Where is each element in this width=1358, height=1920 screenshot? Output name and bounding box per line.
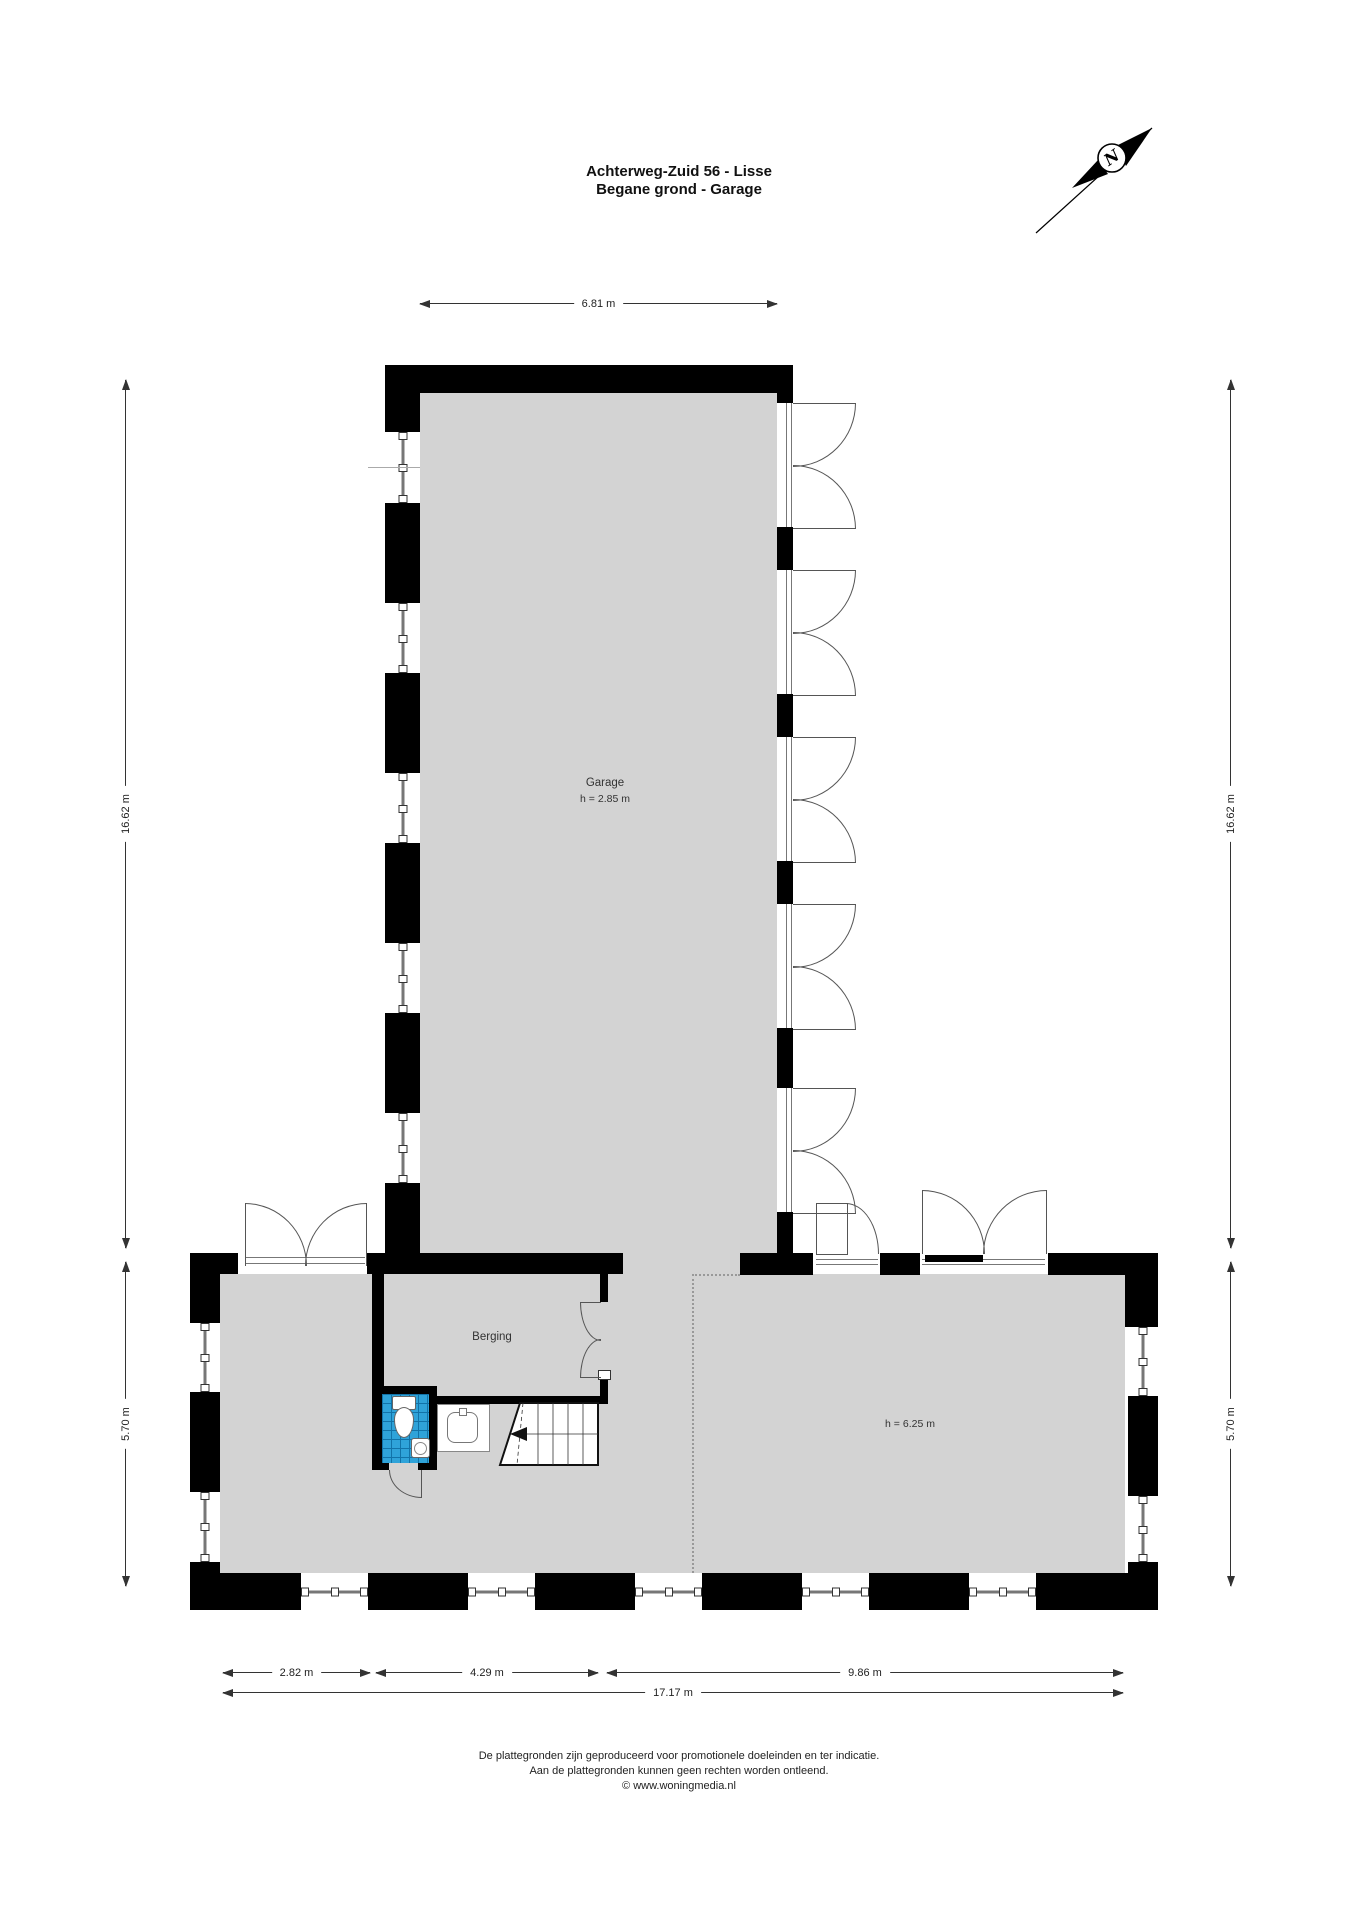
wall-segment <box>385 673 420 773</box>
wall-segment <box>777 861 793 904</box>
window <box>635 1573 702 1610</box>
door-swing <box>793 465 856 529</box>
door-swing <box>245 1203 307 1266</box>
window <box>468 1573 535 1610</box>
wall-segment <box>385 503 420 603</box>
wall-segment <box>385 1183 420 1253</box>
wall-segment <box>777 527 793 570</box>
wall-segment <box>1128 1396 1158 1496</box>
door-jamb <box>786 737 787 861</box>
door-jamb <box>791 403 792 527</box>
dimension-right-lower: 5.70 m <box>1230 1262 1231 1586</box>
door-threshold <box>816 1264 878 1265</box>
wall-segment <box>418 1463 437 1470</box>
door-leaf <box>816 1203 848 1255</box>
wall-segment <box>777 365 793 403</box>
door-swing <box>793 904 856 968</box>
lower-floor <box>220 1274 1125 1573</box>
wall-segment <box>429 1394 437 1463</box>
window <box>385 773 420 843</box>
wall-segment <box>777 1215 793 1253</box>
door-step <box>925 1255 983 1262</box>
door-threshold <box>816 1259 878 1260</box>
window <box>802 1573 869 1610</box>
window <box>190 1492 220 1562</box>
junction-floor <box>623 1253 740 1274</box>
room-label-berging: Berging <box>472 1331 512 1343</box>
door-swing <box>793 737 856 801</box>
room-label-garage: Garage <box>586 777 624 789</box>
disclaimer-line-1: De plattegronden zijn geproduceerd voor … <box>0 1750 1358 1762</box>
door-jamb <box>791 1088 792 1212</box>
wall-segment <box>535 1573 635 1610</box>
wall-segment <box>1048 1253 1158 1275</box>
dimension-bottom-2: 4.29 m <box>376 1672 598 1673</box>
window <box>385 1113 420 1183</box>
dimension-bottom-total: 17.17 m <box>223 1692 1123 1693</box>
wall-segment <box>777 1028 793 1088</box>
wall-segment <box>385 843 420 943</box>
window <box>385 603 420 673</box>
garage-floor <box>420 393 777 1253</box>
wall-segment <box>190 1274 220 1323</box>
north-arrow-icon: N <box>1020 100 1170 250</box>
wall-segment <box>385 1013 420 1113</box>
window <box>301 1573 368 1610</box>
room-height-hall: h = 6.25 m <box>885 1418 935 1430</box>
open-boundary <box>692 1274 694 1573</box>
door-swing <box>922 1190 985 1254</box>
wall-segment <box>372 1463 389 1470</box>
wall-segment <box>1036 1573 1158 1610</box>
wall-segment <box>869 1573 969 1610</box>
wall-segment <box>702 1573 802 1610</box>
door-jamb <box>786 570 787 694</box>
wall-segment <box>367 1253 623 1274</box>
wall-segment <box>777 694 793 737</box>
door-threshold <box>922 1264 1045 1265</box>
window <box>969 1573 1036 1610</box>
door-jamb <box>786 403 787 527</box>
sink-icon <box>447 1412 478 1443</box>
wall-segment <box>740 1253 813 1275</box>
door-swing <box>846 1203 879 1254</box>
window <box>385 943 420 1013</box>
door-swing <box>793 966 856 1030</box>
wall-segment <box>368 1573 468 1610</box>
wall-segment <box>190 1392 220 1492</box>
floorplan-page: Achterweg-Zuid 56 - Lisse Begane grond -… <box>0 0 1358 1920</box>
door-jamb <box>786 904 787 1028</box>
door-swing <box>793 403 856 467</box>
room-height-garage: h = 2.85 m <box>580 793 630 805</box>
wall-segment <box>190 1573 301 1610</box>
door-jamb <box>791 737 792 861</box>
door-swing <box>793 570 856 634</box>
dimension-left-lower: 5.70 m <box>125 1262 126 1586</box>
door-swing <box>793 1088 856 1152</box>
wall-segment <box>385 365 793 393</box>
wall-segment <box>190 1253 238 1274</box>
dimension-right-upper: 16.62 m <box>1230 380 1231 1248</box>
door-swing <box>983 1190 1047 1254</box>
disclaimer-line-2: Aan de plattegronden kunnen geen rechten… <box>0 1765 1358 1777</box>
dimension-left-upper: 16.62 m <box>125 380 126 1248</box>
dimension-bottom-3: 9.86 m <box>607 1672 1123 1673</box>
washbasin-icon <box>411 1438 430 1458</box>
door-swing <box>793 799 856 863</box>
door-jamb <box>786 1088 787 1212</box>
door-swing <box>305 1203 367 1266</box>
door-swing <box>793 632 856 696</box>
open-boundary <box>692 1274 740 1276</box>
window <box>1128 1496 1158 1562</box>
window <box>1128 1327 1158 1396</box>
window-sill-line <box>368 467 420 468</box>
staircase <box>496 1400 602 1470</box>
dimension-top: 6.81 m <box>420 303 777 304</box>
window <box>190 1323 220 1392</box>
wall-segment <box>1125 1274 1158 1327</box>
wall-segment <box>372 1274 384 1386</box>
dimension-bottom-1: 2.82 m <box>223 1672 370 1673</box>
wall-segment <box>880 1253 920 1275</box>
wall-segment <box>600 1274 608 1302</box>
door-jamb <box>791 904 792 1028</box>
door-jamb <box>791 570 792 694</box>
copyright-line: © www.woningmedia.nl <box>0 1780 1358 1792</box>
wall-segment <box>372 1386 382 1470</box>
wall-segment <box>385 365 420 432</box>
